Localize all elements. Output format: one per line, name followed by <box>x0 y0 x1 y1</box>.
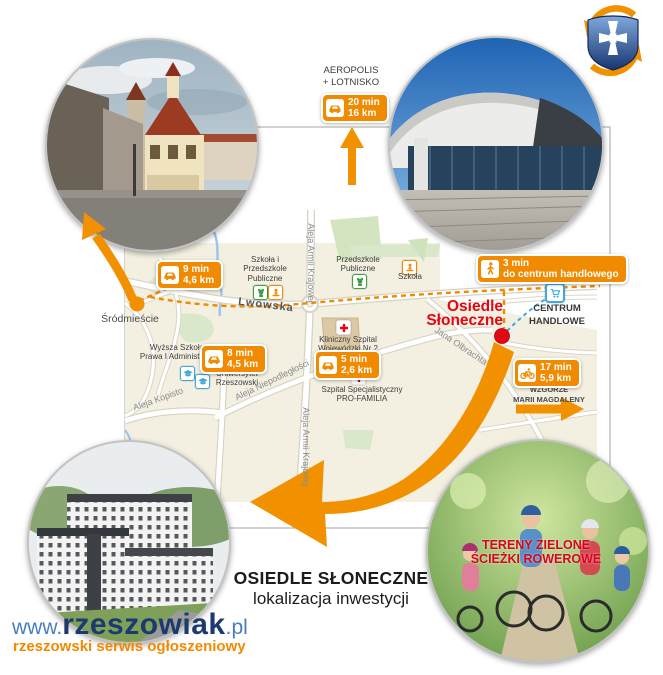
title-line2: lokalizacja inwestycji <box>234 589 429 609</box>
aeropolis-label: AEROPOLIS + LOTNISKO <box>323 65 379 89</box>
label-hill: WZGÓRZE MARII MAGDALENY <box>513 385 585 405</box>
badge-airport-dist: 16 km <box>348 108 380 119</box>
hospital-cross-icon <box>336 320 351 335</box>
badge-hospital: 5 min 2,6 km <box>314 350 381 380</box>
car-icon <box>319 356 337 374</box>
label-school: Szkoła <box>398 272 422 281</box>
school-icon <box>268 285 283 300</box>
bikes-caption-line2: ŚCIEŻKI ROWEROWE <box>471 552 602 566</box>
site-link-brand[interactable]: rzeszowiak <box>62 608 225 641</box>
car-icon <box>161 266 179 284</box>
town-hall-art <box>47 40 257 250</box>
page-title: OSIEDLE SŁONECZNE lokalizacja inwestycji <box>234 568 429 609</box>
badge-airport-time: 20 min <box>348 97 380 108</box>
badge-airport: 20 min 16 km <box>321 93 389 123</box>
badge-hospital-time: 5 min <box>341 354 372 365</box>
airport-photo <box>388 36 604 252</box>
badge-hill-dist: 5,9 km <box>540 373 572 384</box>
airport-art <box>390 38 602 250</box>
bikes-caption: TERENY ZIELONE ŚCIEŻKI ROWEROWE <box>471 538 602 567</box>
bikes-caption-line1: TERENY ZIELONE <box>471 538 602 552</box>
street-armii-krajowej: Aleja Armii Krajowej <box>306 223 316 303</box>
badge-university: 8 min 4,5 km <box>200 344 267 374</box>
car-icon <box>205 350 223 368</box>
pedestrian-icon <box>481 260 499 278</box>
site-link[interactable]: www.rzeszowiak.pl <box>12 608 248 642</box>
infographic-canvas: TERENY ZIELONE ŚCIEŻKI ROWEROWE <box>0 0 663 675</box>
badge-mall: 3 min do centrum handlowego <box>476 254 628 284</box>
shopping-cart-icon <box>545 283 565 303</box>
label-hospital-2: Szpital Specjalistyczny PRO-FAMILIA <box>322 385 403 404</box>
site-link-tld[interactable]: .pl <box>226 616 248 639</box>
university-icon <box>180 366 195 381</box>
label-city-centre: Śródmieście <box>101 313 159 325</box>
site-link-www[interactable]: www. <box>12 616 62 639</box>
estate-dot <box>495 329 510 344</box>
street-armii-krajowej-2: Aleja Armii Krajowej <box>301 407 311 487</box>
town-hall-photo <box>45 38 259 252</box>
city-centre-dot <box>130 297 145 312</box>
label-mall: CENTRUM HANDLOWE <box>529 302 585 328</box>
aeropolis-line2: + LOTNISKO <box>323 77 379 89</box>
title-line1: OSIEDLE SŁONECZNE <box>234 568 429 589</box>
badge-hill-time: 17 min <box>540 362 572 373</box>
badge-city-centre-time: 9 min <box>183 264 214 275</box>
badge-university-dist: 4,5 km <box>227 359 258 370</box>
label-preschool: Przedszkole Publiczne <box>336 255 380 274</box>
car-icon <box>326 99 344 117</box>
site-tagline: rzeszowski serwis ogłoszeniowy <box>13 638 246 655</box>
badge-mall-dist: do centrum handlowego <box>503 269 619 280</box>
badge-hill: 17 min 5,9 km <box>513 358 581 388</box>
label-school-preschool: Szkoła i Przedszkole Publiczne <box>243 255 287 283</box>
badge-city-centre-dist: 4,6 km <box>183 275 214 286</box>
badge-mall-time: 3 min <box>503 258 619 269</box>
badge-university-time: 8 min <box>227 348 258 359</box>
badge-hospital-dist: 2,6 km <box>341 365 372 376</box>
preschool-icon <box>352 274 367 289</box>
university-icon <box>195 374 210 389</box>
bicycle-icon <box>518 364 536 382</box>
label-estate: Osiedle Słoneczne <box>396 300 503 328</box>
badge-city-centre: 9 min 4,6 km <box>156 260 223 290</box>
aeropolis-line1: AEROPOLIS <box>323 65 379 77</box>
